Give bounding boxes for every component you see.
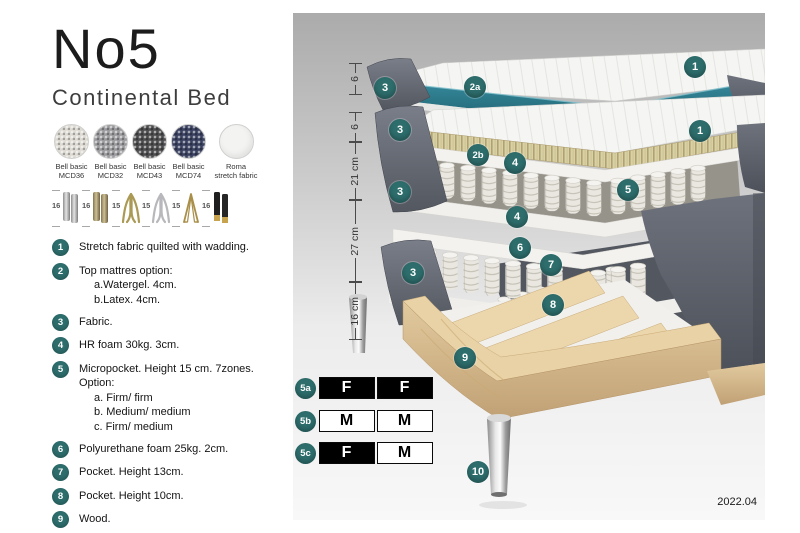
firmness-cell: M <box>377 442 433 464</box>
feature-text: Fabric. <box>79 316 113 328</box>
dimension-top-pad: 6 <box>347 63 363 95</box>
leg-cylinder-silver-icon <box>61 190 81 226</box>
callout-3-lower: 3 <box>402 262 424 284</box>
firmness-cell: F <box>377 377 433 399</box>
leg-option-cylinder-brass: 16 <box>82 187 112 229</box>
leg-hairpin-gold-icon <box>181 190 201 226</box>
fabric-swatch: Bell basicMCD36 <box>52 124 91 180</box>
fabric-swatch-icon <box>132 124 167 159</box>
leg-option-splayed-gold: 15 <box>112 187 142 229</box>
swatch-code: MCD32 <box>98 171 123 180</box>
version-label: 2022.04 <box>717 496 757 508</box>
callout-4-hr-foam-bottom: 4 <box>506 206 528 228</box>
dimension-pocket-mattress: 27 cm <box>347 200 363 282</box>
firmness-row-5a: 5a F F <box>295 377 435 399</box>
firmness-row-5c: 5c F M <box>295 442 435 464</box>
feature-text: Top mattres option: <box>79 265 173 277</box>
feature-text: Polyurethane foam 25kg. 2cm. <box>79 443 228 455</box>
callout-10-metal-leg: 10 <box>467 461 489 483</box>
swatch-code: MCD74 <box>176 171 201 180</box>
list-item: 7 Pocket. Height 13cm. <box>52 465 288 481</box>
feature-number-badge: 5 <box>52 361 69 378</box>
fabric-swatch: Romastretch fabric <box>213 124 259 180</box>
callout-5c: 5c <box>295 443 316 464</box>
callout-2b-latex: 2b <box>467 144 489 166</box>
feature-number-badge: 8 <box>52 488 69 505</box>
product-sheet: No5 Continental Bed Bell basicMCD36 Bell… <box>0 0 800 533</box>
leg-options: 16 16 15 <box>52 187 293 229</box>
callout-5a: 5a <box>295 378 316 399</box>
callout-3-upper: 3 <box>389 119 411 141</box>
firmness-cell: M <box>377 410 433 432</box>
leg-option-splayed-silver: 15 <box>142 187 172 229</box>
feature-text: Stretch fabric quilted with wadding. <box>79 241 249 253</box>
leg-height-label: 16 <box>202 201 210 210</box>
swatch-code: MCD43 <box>137 171 162 180</box>
page-title: No5 <box>52 20 293 78</box>
dimension-label: 6 <box>349 121 361 133</box>
feature-number-badge: 3 <box>52 314 69 331</box>
feature-number-badge: 9 <box>52 511 69 528</box>
callout-3-mid: 3 <box>389 181 411 203</box>
bed-cutaway-panel: 6 6 21 cm 27 cm 16 cm 1 3 2a 3 1 2b 4 5 … <box>293 13 765 520</box>
list-item: 6 Polyurethane foam 25kg. 2cm. <box>52 442 288 458</box>
feature-text: Pocket. Height 13cm. <box>79 466 184 478</box>
dimension-label: 27 cm <box>349 224 361 259</box>
leg-splayed-gold-icon <box>121 190 141 226</box>
callout-4-hr-foam-top: 4 <box>504 152 526 174</box>
feature-text: Micropocket. Height 15 cm. 7zones. Optio… <box>79 363 254 390</box>
list-item: 1 Stretch fabric quilted with wadding. <box>52 240 288 256</box>
fabric-swatch: Bell basicMCD43 <box>130 124 169 180</box>
feature-text: Pocket. Height 10cm. <box>79 490 184 502</box>
page-subtitle: Continental Bed <box>52 85 293 111</box>
fabric-swatch-icon <box>93 124 128 159</box>
callout-2a-watergel: 2a <box>464 76 486 98</box>
swatch-code: stretch fabric <box>215 171 258 180</box>
fabric-swatch: Bell basicMCD74 <box>169 124 208 180</box>
feature-text: HR foam 30kg. 3cm. <box>79 339 179 351</box>
list-item: 2 Top mattres option: a.Watergel. 4cm. b… <box>52 264 288 308</box>
firmness-cell: F <box>319 442 375 464</box>
leg-height-label: 15 <box>142 201 150 210</box>
callout-6-polyurethane: 6 <box>509 237 531 259</box>
dimension-label: 6 <box>349 73 361 85</box>
firmness-row-5b: 5b M M <box>295 410 435 432</box>
feature-number-badge: 7 <box>52 464 69 481</box>
feature-subtext: c. Firm/ medium <box>79 420 288 435</box>
callout-1-top: 1 <box>684 56 706 78</box>
dimension-base: 16 cm <box>347 282 363 340</box>
dimension-upper-fabric: 6 <box>347 112 363 142</box>
list-item: 5 Micropocket. Height 15 cm. 7zones. Opt… <box>52 362 288 435</box>
callout-9-wood: 9 <box>454 347 476 369</box>
feature-text: Wood. <box>79 513 111 525</box>
feature-number-badge: 1 <box>52 239 69 256</box>
leg-option-cylinder-black-gold: 16 <box>202 187 232 229</box>
feature-subtext: b.Latex. 4cm. <box>79 293 177 308</box>
list-item: 9 Wood. <box>52 512 288 528</box>
leg-height-label: 15 <box>112 201 120 210</box>
fabric-swatch-icon <box>219 124 254 159</box>
leg-height-label: 15 <box>172 201 180 210</box>
feature-subtext: b. Medium/ medium <box>79 405 288 420</box>
callout-7-pocket-13: 7 <box>540 254 562 276</box>
leg-height-label: 16 <box>82 201 90 210</box>
feature-number-badge: 2 <box>52 263 69 280</box>
dimension-label: 16 cm <box>349 294 361 329</box>
dimension-micropocket: 21 cm <box>347 142 363 200</box>
dimension-label: 21 cm <box>349 154 361 189</box>
fabric-swatch: Bell basicMCD32 <box>91 124 130 180</box>
callout-8-pocket-10: 8 <box>542 294 564 316</box>
leg-height-label: 16 <box>52 201 60 210</box>
callout-5b: 5b <box>295 411 316 432</box>
callout-3-top-pad: 3 <box>374 77 396 99</box>
list-item: 4 HR foam 30kg. 3cm. <box>52 338 288 354</box>
leg-option-cylinder-silver: 16 <box>52 187 82 229</box>
leg-option-hairpin-gold: 15 <box>172 187 202 229</box>
feature-number-badge: 4 <box>52 337 69 354</box>
fabric-swatch-icon <box>171 124 206 159</box>
feature-number-badge: 6 <box>52 441 69 458</box>
leg-cylinder-black-gold-icon <box>211 190 231 226</box>
list-item: 8 Pocket. Height 10cm. <box>52 489 288 505</box>
feature-subtext: a. Firm/ firm <box>79 391 288 406</box>
firmness-cell: M <box>319 410 375 432</box>
fabric-swatch-icon <box>54 124 89 159</box>
leg-cylinder-brass-icon <box>91 190 111 226</box>
callout-1-upper: 1 <box>689 120 711 142</box>
firmness-cell: F <box>319 377 375 399</box>
fabric-swatches: Bell basicMCD36 Bell basicMCD32 Bell bas… <box>52 124 293 180</box>
swatch-code: MCD36 <box>59 171 84 180</box>
callout-5-micropocket: 5 <box>617 179 639 201</box>
feature-subtext: a.Watergel. 4cm. <box>79 278 177 293</box>
leg-splayed-silver-icon <box>151 190 171 226</box>
info-column: No5 Continental Bed Bell basicMCD36 Bell… <box>0 0 293 533</box>
list-item: 3 Fabric. <box>52 315 288 331</box>
feature-list: 1 Stretch fabric quilted with wadding. 2… <box>52 240 288 533</box>
